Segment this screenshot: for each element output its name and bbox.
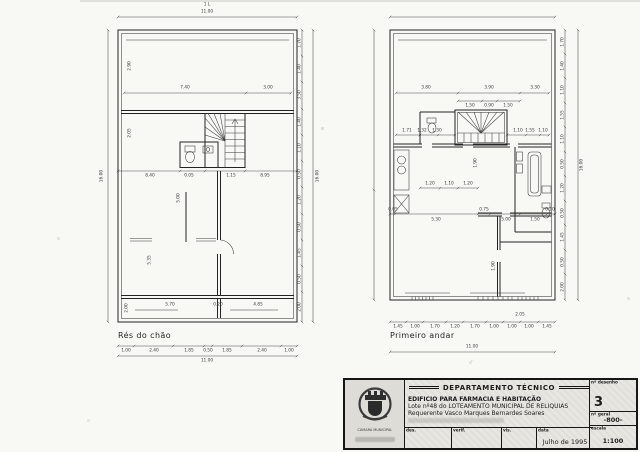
- dimension-label: 3.30: [530, 86, 540, 90]
- dimension-label: 16.00: [316, 170, 320, 182]
- dimension-label: 0.50: [298, 169, 302, 179]
- first-floor-plan: Primeiro andar 3.803.903.301.500.901.501…: [360, 0, 610, 368]
- ground-wc: [180, 142, 218, 168]
- dimension-label: 2.00: [298, 302, 302, 312]
- dimension-label: 16.00: [100, 170, 104, 182]
- municipality-name: CÂMARA MUNICIPAL: [357, 428, 391, 432]
- first-staircase: [455, 110, 507, 145]
- dimension-label: 3.80: [421, 86, 431, 90]
- dimension-label: 0.50: [203, 349, 213, 353]
- ground-staircase: [205, 114, 245, 168]
- cell-date: data Julho de 1995: [537, 428, 593, 448]
- dimension-label: 2.40: [257, 349, 267, 353]
- ground-floor-linework: [50, 0, 330, 368]
- date-value: Julho de 1995: [537, 438, 593, 446]
- dimension-label: 2.40: [149, 349, 159, 353]
- title-block: CÂMARA MUNICIPAL DEPARTAMENTO TÉCNICO ED…: [343, 378, 638, 450]
- dimension-label: 1.20: [450, 325, 460, 329]
- dimension-label: 1 L: [204, 3, 211, 7]
- dimension-label: 1.71: [402, 129, 412, 133]
- dimension-label: 3.00: [263, 86, 273, 90]
- municipality-smudge: [355, 437, 395, 442]
- first-floor-label: Primeiro andar: [390, 331, 455, 340]
- dimension-label: 0.50: [561, 159, 565, 169]
- numbers-column: nº desenho 3 nº geral -800- escala 1:100: [589, 380, 636, 448]
- dimension-label: 0.50: [561, 208, 565, 218]
- project-subtitle: Lote nº48 do LOTEAMENTO MUNICIPAL DE REL…: [408, 403, 590, 410]
- dimension-label: 1.45: [393, 325, 403, 329]
- bathtub-symbol: [528, 152, 541, 196]
- dimension-label: 0.05: [388, 208, 398, 212]
- dimension-label: 1.20: [298, 195, 302, 205]
- scan-specks: [0, 0, 1, 1]
- dimension-label: 1.10: [444, 182, 454, 186]
- dimension-label: 3.90: [484, 86, 494, 90]
- dimension-label: 1.55: [525, 129, 535, 133]
- dimension-label: 1.70: [470, 325, 480, 329]
- department-title: DEPARTAMENTO TÉCNICO: [443, 384, 555, 392]
- dimension-label: 1.85: [222, 349, 232, 353]
- drawing-number-value: 3: [594, 395, 603, 410]
- dimension-label: 1.20: [561, 183, 565, 193]
- dimension-label: 1.55: [561, 110, 565, 120]
- department-header: DEPARTAMENTO TÉCNICO: [405, 380, 593, 395]
- dimension-label: 11.00: [201, 359, 213, 363]
- dimension-label: 1.00: [489, 325, 499, 329]
- toilet-symbol: [186, 152, 195, 163]
- scale-cell: escala 1:100: [590, 426, 636, 446]
- municipal-crest: [353, 383, 397, 423]
- dimension-label: 5.35: [148, 255, 152, 265]
- dimension-label: 1.20: [463, 182, 473, 186]
- dimension-label: 1.32: [417, 129, 427, 133]
- dimension-label: 1.00: [410, 325, 420, 329]
- first-dimension-lines: [374, 17, 578, 352]
- cell-des: des.: [405, 428, 452, 448]
- applicant-line: Requerente Vasco Marques Bernardes Soare…: [408, 410, 590, 417]
- dimension-label: 0.50: [298, 222, 302, 232]
- signature-row: des. verif. vis. data Julho de 1995: [405, 427, 593, 448]
- drawing-number-label: nº desenho: [591, 380, 618, 385]
- ground-floor-plan: Rés do chão 1 L11.0016.007.403.002.902.0…: [50, 0, 330, 368]
- dimension-label: 0.50: [298, 274, 302, 284]
- dimension-label: 11.00: [466, 345, 478, 349]
- municipality-cell: CÂMARA MUNICIPAL: [345, 380, 405, 448]
- dimension-label: 1.00: [524, 325, 534, 329]
- general-number-cell: nº geral -800-: [590, 412, 636, 426]
- dimension-label: 1.10: [298, 143, 302, 153]
- dimension-label: 0.05: [184, 174, 194, 178]
- first-floor-linework: [360, 0, 610, 368]
- cell-verif: verif.: [452, 428, 502, 448]
- dimension-label: 1.70: [298, 38, 302, 48]
- dimension-label: 1.00: [507, 325, 517, 329]
- cell-vis: vis.: [502, 428, 537, 448]
- dimension-label: 5.70: [165, 303, 175, 307]
- dimension-label: 1.45: [298, 248, 302, 258]
- dimension-label: 1.15: [226, 174, 236, 178]
- dimension-label: 1.40: [561, 61, 565, 71]
- dimension-label: 1.70: [561, 37, 565, 47]
- dimension-label: 8.40: [145, 174, 155, 178]
- dimension-label: .: [471, 358, 472, 362]
- dimension-label: 11.00: [201, 10, 213, 14]
- des-label: des.: [406, 428, 416, 433]
- dimension-label: 8.95: [260, 174, 270, 178]
- scale-value: 1:100: [590, 437, 636, 445]
- date-label: data: [538, 428, 549, 433]
- dimension-label: 2.05: [128, 128, 132, 138]
- dimension-label: 1.70: [430, 325, 440, 329]
- dimension-label: 2.90: [128, 61, 132, 71]
- dimension-label: 1.40: [298, 64, 302, 74]
- dimension-label: 1.50: [530, 218, 540, 222]
- dimension-label: 1.10: [538, 129, 548, 133]
- dimension-label: 1.00: [121, 349, 131, 353]
- dimension-label: 1.20: [425, 182, 435, 186]
- dimension-label: 1.90: [474, 158, 478, 168]
- dimension-label: 1.10: [561, 85, 565, 95]
- dimension-label: 2.05: [515, 313, 525, 317]
- dimension-label: 1.00: [284, 349, 294, 353]
- dimension-label: 1.45: [561, 232, 565, 242]
- dimension-label: 0.50: [561, 257, 565, 267]
- general-number-value: -800-: [590, 416, 636, 424]
- dimension-label: 0.75: [479, 208, 489, 212]
- scale-label: escala: [591, 426, 606, 431]
- dimension-label: 5.00: [501, 218, 511, 222]
- header-rule-right: [559, 386, 589, 390]
- ground-floor-label: Rés do chão: [118, 331, 171, 340]
- ground-dimension-lines: [108, 17, 313, 356]
- dimension-label: 7.40: [180, 86, 190, 90]
- dimension-label: 4.85: [253, 303, 263, 307]
- dimension-label: 16.00: [580, 159, 584, 171]
- drawing-number-cell: nº desenho 3: [590, 380, 636, 412]
- dimension-label: 1.85: [184, 349, 194, 353]
- dimension-label: 0.20: [213, 303, 223, 307]
- dimension-label: 0.10: [545, 208, 555, 212]
- dimension-label: 0.90: [484, 104, 494, 108]
- faded-stamp-line: [408, 418, 504, 423]
- header-rule-left: [409, 386, 439, 390]
- dimension-label: 1.50: [465, 104, 475, 108]
- scanned-floor-plan-sheet: Rés do chão 1 L11.0016.007.403.002.902.0…: [0, 0, 640, 452]
- dimension-label: 5.00: [177, 193, 181, 203]
- dimension-label: 2.00: [125, 303, 129, 313]
- vis-label: vis.: [503, 428, 511, 433]
- dimension-label: 5.30: [431, 218, 441, 222]
- dimension-label: 1.50: [503, 104, 513, 108]
- sink-symbol: [542, 186, 551, 193]
- dimension-label: 3.50: [298, 90, 302, 100]
- project-title: EDIFICIO PARA FARMACIA E HABITAÇÃO: [408, 396, 590, 403]
- dimension-label: 1.90: [492, 261, 496, 271]
- dimension-label: 1.10: [513, 129, 523, 133]
- verif-label: verif.: [453, 428, 465, 433]
- dimension-label: 1.10: [561, 134, 565, 144]
- dimension-label: 1.30: [432, 129, 442, 133]
- project-description: EDIFICIO PARA FARMACIA E HABITAÇÃO Lote …: [405, 395, 593, 427]
- dimension-label: 2.00: [561, 282, 565, 292]
- dimension-label: 1.45: [542, 325, 552, 329]
- dimension-label: 1.40: [298, 117, 302, 127]
